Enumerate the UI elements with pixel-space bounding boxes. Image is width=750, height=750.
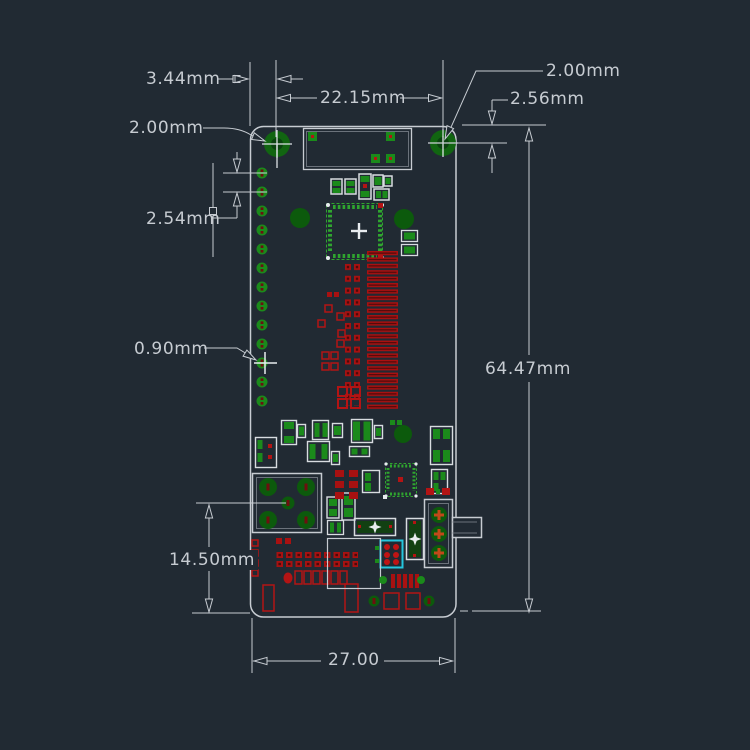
copper-pour-mid (394, 425, 412, 443)
switch-actuator[interactable] (453, 518, 482, 538)
connector-pads (308, 132, 395, 163)
dim-label-board-width[interactable]: 27.00 (325, 650, 383, 670)
bottom-green-pads (369, 596, 435, 607)
fpc-connector-pads[interactable] (366, 251, 400, 409)
pin-crosshair (254, 352, 277, 374)
pcb-drawing (0, 0, 750, 750)
display-connector[interactable] (304, 129, 412, 170)
dim-label-hole-edge-offset[interactable]: 3.44mm (146, 69, 221, 89)
cad-viewport: 3.44mm 22.15mm 2.00mm 2.00mm 2.56mm 2.54… (0, 0, 750, 750)
dim-label-hole-spacing[interactable]: 22.15mm (320, 88, 406, 108)
dim-label-pin-pitch[interactable]: 2.54mm (146, 209, 221, 229)
dim-label-drill-right[interactable]: 2.00mm (546, 61, 621, 81)
chip-center-crosshair (351, 223, 367, 239)
component-cluster-top[interactable] (331, 174, 392, 200)
selected-component[interactable] (375, 541, 403, 568)
switch-pads (431, 507, 447, 561)
rf-chip[interactable] (383, 462, 418, 499)
slide-switch[interactable] (425, 488, 482, 568)
passive-right-of-chip[interactable] (402, 231, 418, 256)
dim-label-board-height[interactable]: 64.47mm (482, 359, 574, 379)
red-pad-block (335, 470, 358, 499)
small-dual-pad-part[interactable] (328, 521, 344, 535)
pin-header-left[interactable] (257, 168, 268, 407)
dim-label-usb-offset[interactable]: 14.50mm (166, 550, 258, 570)
dim-label-drill-left[interactable]: 2.00mm (129, 118, 204, 138)
dim-label-pad-width[interactable]: 0.90mm (134, 339, 209, 359)
dim-label-hole-top-offset[interactable]: 2.56mm (510, 89, 585, 109)
via-pair-column (344, 262, 361, 406)
copper-pour-right (394, 209, 414, 229)
led-star-horizontal[interactable] (355, 519, 396, 536)
mounting-hole-left[interactable] (262, 130, 292, 168)
red-bar-row (391, 574, 419, 588)
led-star-vertical[interactable] (407, 519, 424, 560)
copper-pour-left (290, 208, 310, 228)
